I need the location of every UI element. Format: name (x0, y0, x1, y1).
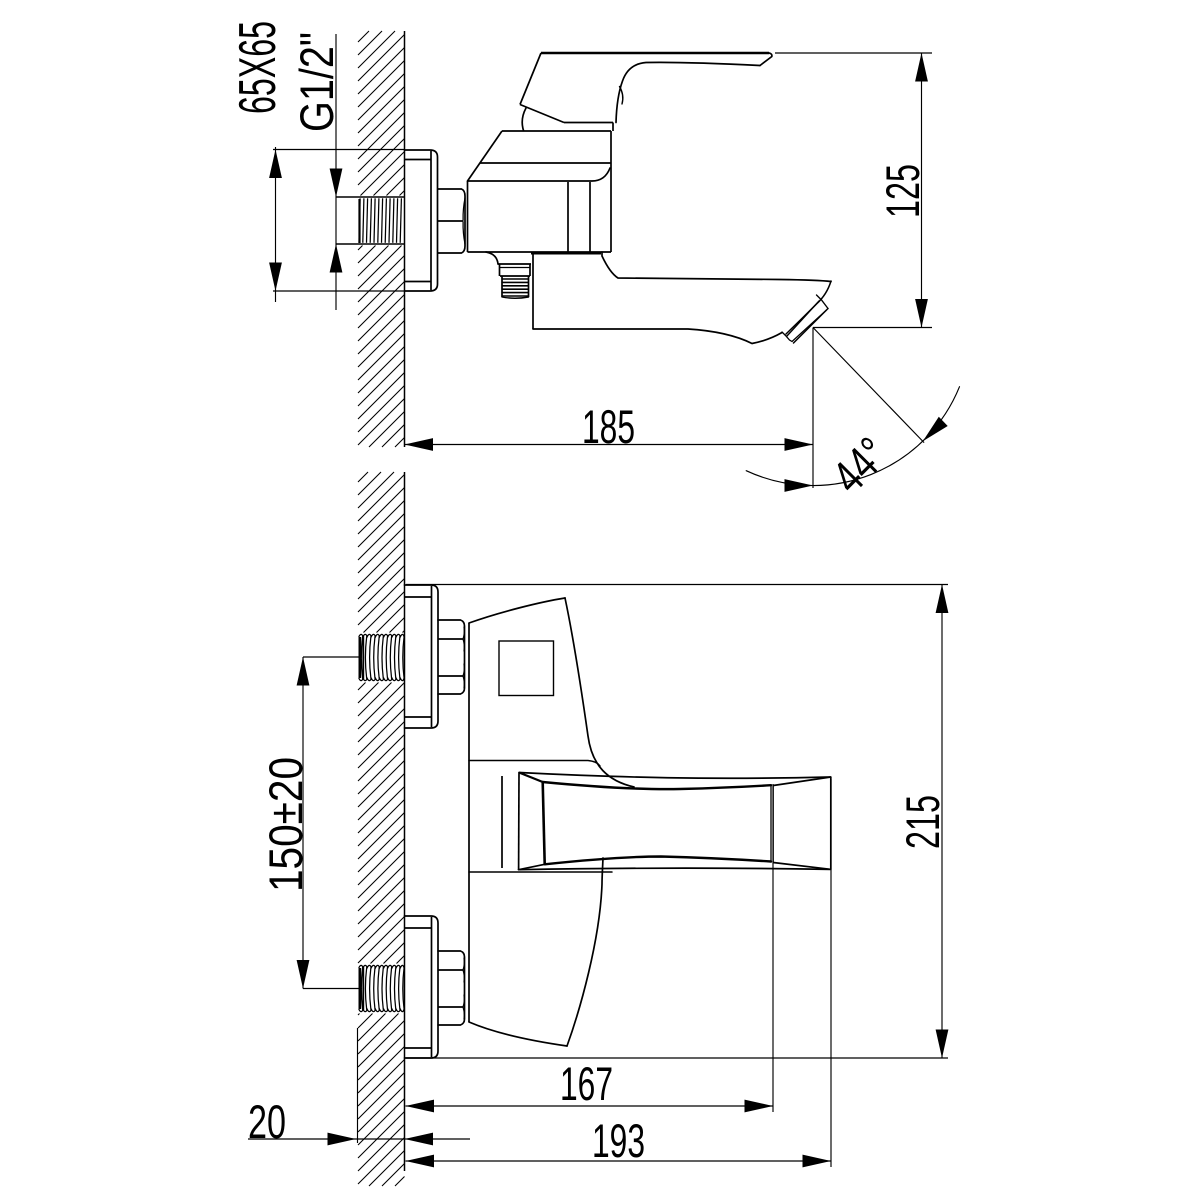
svg-text:125: 125 (876, 164, 929, 218)
svg-text:193: 193 (592, 1114, 645, 1167)
svg-text:G1/2": G1/2" (290, 32, 343, 132)
svg-text:150±20: 150±20 (259, 757, 312, 892)
svg-text:167: 167 (560, 1057, 613, 1110)
svg-text:215: 215 (896, 795, 949, 849)
svg-text:65X65: 65X65 (229, 21, 287, 114)
svg-text:20: 20 (248, 1095, 286, 1148)
svg-text:185: 185 (582, 400, 635, 453)
